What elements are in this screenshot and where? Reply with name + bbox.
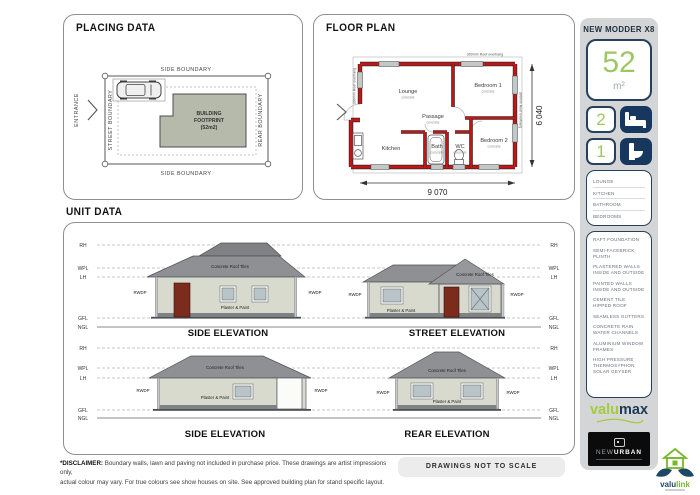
roof-overhang-label: 300mm Roof overhang <box>519 92 523 129</box>
svg-text:valulink: valulink <box>660 480 690 489</box>
room-label-kitchen: Kitchen <box>382 146 401 152</box>
room-sub: concrete <box>487 145 500 149</box>
area-unit: m² <box>588 81 650 92</box>
level-label: NGL <box>78 416 89 422</box>
kitchen-fixtures <box>353 133 363 159</box>
level-label: LH <box>551 376 558 382</box>
dimension-height <box>530 64 535 167</box>
footprint-label-1: BUILDING <box>196 111 221 117</box>
level-label: RH <box>550 243 558 249</box>
elevation-caption: STREET ELEVATION <box>409 328 505 339</box>
footprint-label-3: (52m2) <box>201 125 218 131</box>
valulink-logo: valulink <box>652 446 698 494</box>
entrance-arrow-icon <box>88 100 97 120</box>
wall-finish-label: Plaster & Paint <box>387 308 416 313</box>
feature-item: SEMI-FACEBRICK PLINTH <box>593 248 645 260</box>
side-elevation-2-drawing: Concrete Roof Tiles Plaster & Paint RWDP… <box>136 356 327 411</box>
roof-overhang-label: 300mm Roof overhang <box>353 68 357 105</box>
elevation-caption: REAR ELEVATION <box>404 429 489 440</box>
feature-item: CEMENT TILE HIPPED ROOF <box>593 297 645 309</box>
rwdp-label: RWDP <box>506 390 519 395</box>
entrance-label: ENTRANCE <box>74 93 80 127</box>
placing-data-diagram: ENTRANCE SIDE BOUNDARY SIDE BOUNDARY STR… <box>63 14 303 200</box>
level-label: GFL <box>78 408 88 414</box>
level-label: GFL <box>78 316 88 322</box>
valulink-house-icon <box>664 449 686 458</box>
bed-icon <box>620 106 652 133</box>
bathroom-count-box: 1 <box>586 138 616 165</box>
dim-height-label: 6 040 <box>535 105 544 126</box>
valulink-logo-text: link <box>676 480 690 489</box>
feature-item: HIGH PRESSURE THERMOSYPHON SOLAR GEYSER <box>593 357 645 375</box>
feature-item: RAFT FOUNDATION <box>593 237 645 243</box>
room-label-passage: Passage <box>422 114 444 120</box>
unit-data-title: UNIT DATA <box>66 206 122 218</box>
rwdp-label: RWDP <box>136 388 149 393</box>
sidebar-panel: NEW MODDER X8 52 m² 2 1 LOUNG <box>580 18 658 470</box>
new-urban-logo: NEWURBAN <box>588 432 650 466</box>
door-swing-arcs <box>344 104 482 132</box>
wall-finish-label: Plaster & Paint <box>433 399 462 404</box>
side-boundary-top-label: SIDE BOUNDARY <box>160 67 211 73</box>
disclaimer: *DISCLAIMER: Boundary walls, lawn and pa… <box>60 459 394 487</box>
roof-material-label: Concrete Roof Tiles <box>211 264 249 269</box>
level-label: NGL <box>549 325 560 331</box>
features-list: RAFT FOUNDATION SEMI-FACEBRICK PLINTH PL… <box>586 231 652 398</box>
level-label: WPL <box>78 366 89 372</box>
feature-item: PAINTED WALLS INSIDE AND OUTSIDE <box>593 281 645 293</box>
boundary-peg-icon <box>102 73 108 79</box>
level-label: NGL <box>78 325 89 331</box>
bedroom-count-box: 2 <box>586 106 616 133</box>
level-label: GFL <box>549 408 559 414</box>
dimension-width <box>360 181 515 186</box>
rear-elevation-drawing: Concrete Roof Tiles Plaster & Paint RWDP… <box>376 352 519 411</box>
area-value: 52 <box>588 45 650 81</box>
room-item: BEDROOMS <box>593 211 645 222</box>
valumax-logo-text: valu <box>590 402 619 418</box>
bathroom-count: 1 <box>588 140 614 164</box>
valumax-swoosh <box>597 419 643 423</box>
rwdp-label: RWDP <box>510 292 523 297</box>
room-sub: concrete <box>481 90 494 94</box>
rwdp-label: RWDP <box>308 290 321 295</box>
side-boundary-bottom-label: SIDE BOUNDARY <box>160 171 211 177</box>
model-name: NEW MODDER X8 <box>582 25 656 34</box>
roof-material-label: Concrete Roof Tiles <box>206 365 244 370</box>
rear-boundary-label: REAR BOUNDARY <box>258 93 264 146</box>
level-label: NGL <box>549 416 560 422</box>
level-label: LH <box>80 376 87 382</box>
room-label-bedroom1: Bedroom 1 <box>474 83 501 89</box>
level-label: WPL <box>549 266 560 272</box>
floor-plan-drawing: 300mm Roof overhang 300mm Roof overhang … <box>313 14 575 200</box>
room-label-bath: Bath <box>431 144 443 150</box>
car-icon <box>113 79 165 101</box>
spec-sheet-page: PLACING DATA ENTRANCE SIDE BOUNDARY SIDE… <box>0 0 700 495</box>
rooms-list: LOUNGE KITCHEN BATHROOM BEDROOMS <box>586 170 652 226</box>
footprint-label-2: FOOTPRINT <box>194 118 225 124</box>
bedroom-count: 2 <box>588 108 614 132</box>
wall-finish-label: Plaster & Paint <box>201 395 230 400</box>
scale-note: DRAWINGS NOT TO SCALE <box>398 457 565 477</box>
new-urban-logo-text: URBAN <box>614 449 642 456</box>
elevations-row-2: RH WPL LH GFL NGL RH WPL LH GFL NGL Conc… <box>63 342 575 452</box>
level-label: WPL <box>78 266 89 272</box>
disclaimer-line-2: actual colour may vary. For true colours… <box>60 478 394 487</box>
room-sub: concrete <box>426 121 439 125</box>
feature-item: SEAMLESS GUTTERS <box>593 314 645 320</box>
valulink-logo-text: valu <box>660 480 676 489</box>
room-item: BATHROOM <box>593 199 645 211</box>
boundary-peg-icon <box>265 73 271 79</box>
rwdp-label: RWDP <box>376 390 389 395</box>
new-urban-mark-icon <box>614 438 625 447</box>
boundary-peg-icon <box>265 161 271 167</box>
room-item: LOUNGE <box>593 176 645 188</box>
room-item: KITCHEN <box>593 188 645 200</box>
roof-overhang-label: 300mm Roof overhang <box>467 53 504 57</box>
toilet-icon <box>620 138 652 165</box>
elevation-caption: SIDE ELEVATION <box>185 429 266 440</box>
dim-width-label: 9 070 <box>427 188 448 197</box>
feature-item: ALUMINIUM WINDOW FRAMES <box>593 341 645 353</box>
elevations-row-1: RH WPL LH GFL NGL RH WPL LH GFL NGL Conc… <box>63 226 575 339</box>
valumax-logo: valumax <box>580 403 658 425</box>
new-urban-tagline-rule <box>596 459 642 460</box>
disclaimer-line-1: Boundary walls, lawn and paving not incl… <box>60 460 386 476</box>
elevation-caption: SIDE ELEVATION <box>188 328 269 339</box>
level-label: RH <box>79 243 87 249</box>
new-urban-logo-text: NEW <box>596 449 614 456</box>
room-label-bedroom2: Bedroom 2 <box>480 138 507 144</box>
level-label: RH <box>550 346 558 352</box>
room-sub: concrete <box>401 96 414 100</box>
valulink-tagline-rule <box>665 490 685 491</box>
valumax-logo-text: max <box>619 402 648 418</box>
rwdp-label: RWDP <box>348 292 361 297</box>
area-box: 52 m² <box>586 39 652 101</box>
room-label-lounge: Lounge <box>399 89 418 95</box>
feature-item: PLASTERED WALLS INSIDE AND OUTSIDE <box>593 264 645 276</box>
room-sub: concrete <box>453 151 466 155</box>
room-label-wc: WC <box>455 144 464 150</box>
valulink-hand-icon <box>678 468 694 476</box>
side-elevation-1-drawing: Concrete Roof Tiles Plaster & Paint RWDP… <box>133 243 321 319</box>
roof-material-label: Concrete Roof Tiles <box>456 272 494 277</box>
roof-material-label: Concrete Roof Tiles <box>428 368 466 373</box>
level-label: RH <box>79 346 87 352</box>
level-label: WPL <box>549 366 560 372</box>
boundary-peg-icon <box>102 161 108 167</box>
room-sub: concrete <box>430 151 443 155</box>
feature-item: CONCRETE RAIN WATER CHANNELS <box>593 324 645 336</box>
disclaimer-label: *DISCLAIMER: <box>60 460 103 467</box>
wall-finish-label: Plaster & Paint <box>221 305 250 310</box>
rwdp-label: RWDP <box>314 388 327 393</box>
rwdp-label: RWDP <box>133 290 146 295</box>
level-label: LH <box>80 275 87 281</box>
plan-entrance-arrow-icon <box>337 104 346 120</box>
level-label: GFL <box>549 316 559 322</box>
valulink-hand-icon <box>656 468 672 476</box>
level-label: LH <box>551 275 558 281</box>
